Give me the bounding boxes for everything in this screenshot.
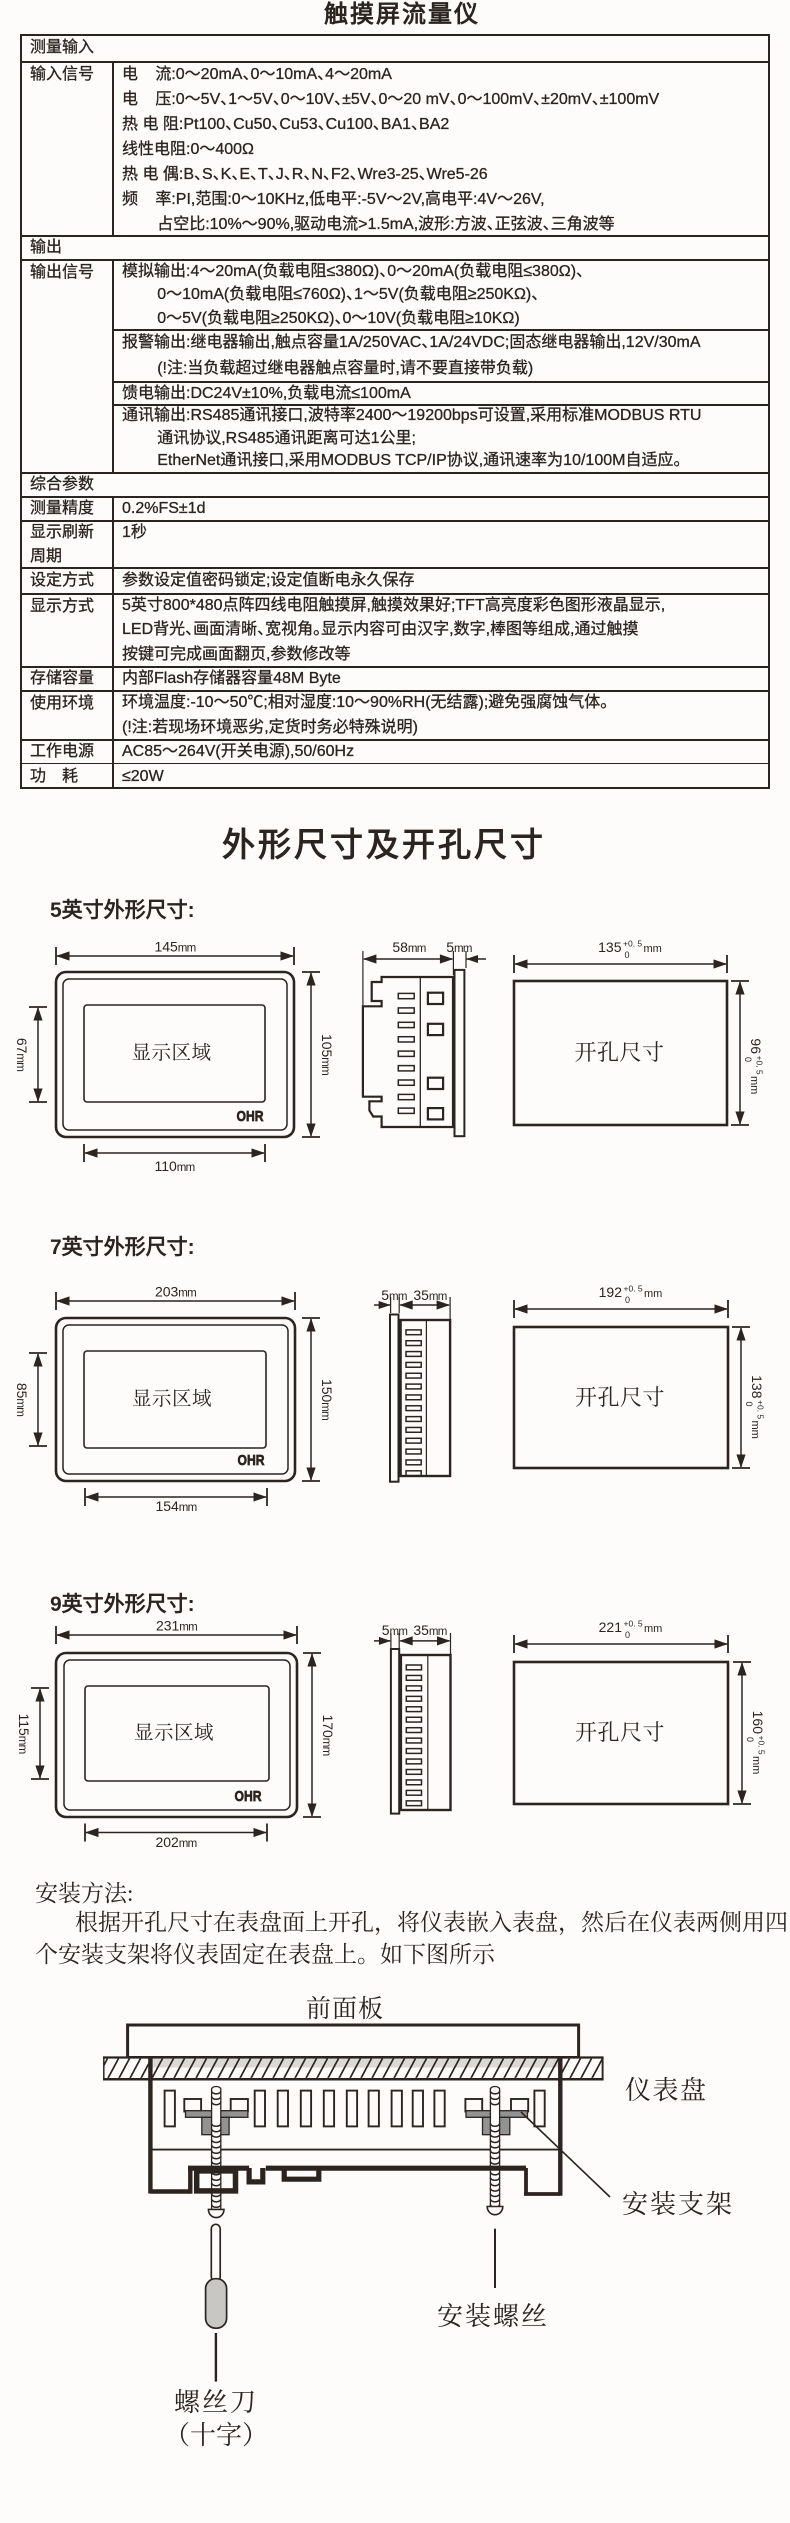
svg-text:OHR: OHR bbox=[238, 1452, 265, 1469]
svg-text:85mm: 85mm bbox=[14, 1383, 30, 1416]
svg-text:+0. 5: +0. 5 bbox=[624, 1284, 643, 1294]
svg-text:5mm: 5mm bbox=[382, 1622, 408, 1638]
svg-text:115mm: 115mm bbox=[16, 1713, 32, 1753]
svg-text:170mm: 170mm bbox=[320, 1714, 336, 1755]
svg-text:mm: mm bbox=[748, 1076, 760, 1094]
svg-text:96: 96 bbox=[748, 1038, 764, 1054]
svg-text:203mm: 203mm bbox=[155, 1284, 196, 1300]
svg-text:+0. 5: +0. 5 bbox=[623, 939, 642, 949]
svg-text:35mm: 35mm bbox=[413, 1287, 446, 1303]
svg-text:mm: mm bbox=[750, 1756, 762, 1774]
svg-text:mm: mm bbox=[644, 1623, 662, 1635]
svg-text:0: 0 bbox=[743, 1057, 753, 1062]
svg-text:+0. 5: +0. 5 bbox=[757, 1736, 767, 1755]
svg-text:160: 160 bbox=[750, 1711, 766, 1735]
svg-text:0: 0 bbox=[625, 1295, 630, 1305]
svg-text:58mm: 58mm bbox=[392, 939, 425, 955]
svg-text:105mm: 105mm bbox=[319, 1034, 335, 1075]
svg-text:231mm: 231mm bbox=[156, 1618, 197, 1634]
svg-text:+0. 5: +0. 5 bbox=[624, 1619, 643, 1629]
svg-text:0: 0 bbox=[625, 1630, 630, 1640]
svg-text:221: 221 bbox=[599, 1619, 623, 1635]
svg-text:35mm: 35mm bbox=[413, 1622, 446, 1638]
svg-text:+0. 5: +0. 5 bbox=[755, 1056, 765, 1075]
svg-text:154mm: 154mm bbox=[155, 1498, 196, 1514]
svg-text:138: 138 bbox=[749, 1375, 765, 1399]
svg-text:OHR: OHR bbox=[237, 1108, 264, 1125]
svg-text:+0. 5: +0. 5 bbox=[756, 1400, 766, 1419]
svg-text:OHR: OHR bbox=[235, 1788, 262, 1805]
svg-text:0: 0 bbox=[625, 950, 630, 960]
svg-text:5mm: 5mm bbox=[446, 939, 472, 955]
svg-text:mm: mm bbox=[644, 1288, 662, 1300]
svg-text:135: 135 bbox=[598, 939, 622, 955]
svg-text:145mm: 145mm bbox=[154, 939, 195, 955]
svg-text:192: 192 bbox=[599, 1284, 623, 1300]
svg-text:0: 0 bbox=[744, 1402, 754, 1407]
svg-text:67mm: 67mm bbox=[14, 1038, 30, 1071]
svg-text:5mm: 5mm bbox=[381, 1287, 407, 1303]
svg-text:150mm: 150mm bbox=[319, 1379, 335, 1420]
svg-text:202mm: 202mm bbox=[155, 1834, 196, 1850]
svg-text:mm: mm bbox=[644, 943, 662, 955]
svg-text:mm: mm bbox=[749, 1421, 761, 1439]
svg-text:110mm: 110mm bbox=[154, 1158, 194, 1174]
svg-text:0: 0 bbox=[745, 1737, 755, 1742]
